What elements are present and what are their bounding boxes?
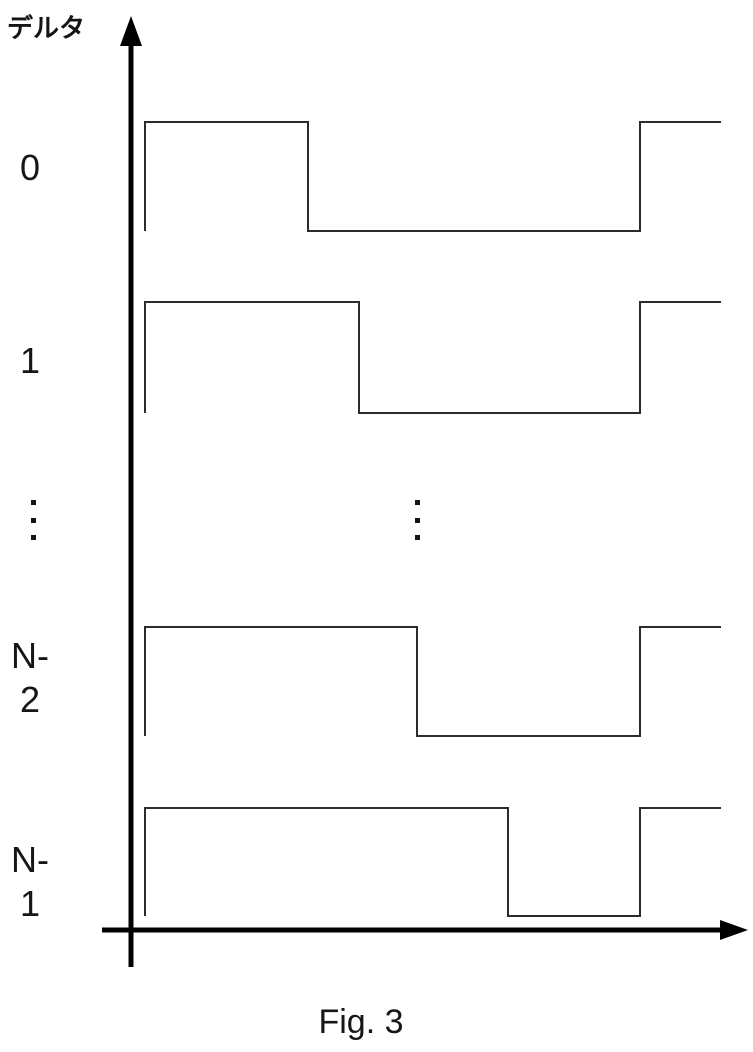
waveform-plot — [0, 0, 753, 1052]
vertical-ellipsis-icon — [31, 500, 36, 505]
waveform-row-0 — [145, 122, 721, 231]
figure-caption: Fig. 3 — [261, 1000, 461, 1044]
waveform-row-1 — [145, 302, 721, 413]
patent-figure: デルタ 0 1 N-2 N-1 Fig. 3 — [0, 0, 753, 1052]
waveform-row-N-2 — [145, 627, 721, 736]
row-label-n-1: N-1 — [4, 838, 56, 926]
waveform-row-N-1 — [145, 808, 721, 916]
row-label-n-2: N-2 — [4, 634, 56, 722]
y-axis-label: デルタ — [7, 8, 85, 45]
row-label-0: 0 — [4, 146, 56, 190]
vertical-ellipsis-icon — [415, 500, 420, 505]
row-label-1: 1 — [4, 339, 56, 383]
